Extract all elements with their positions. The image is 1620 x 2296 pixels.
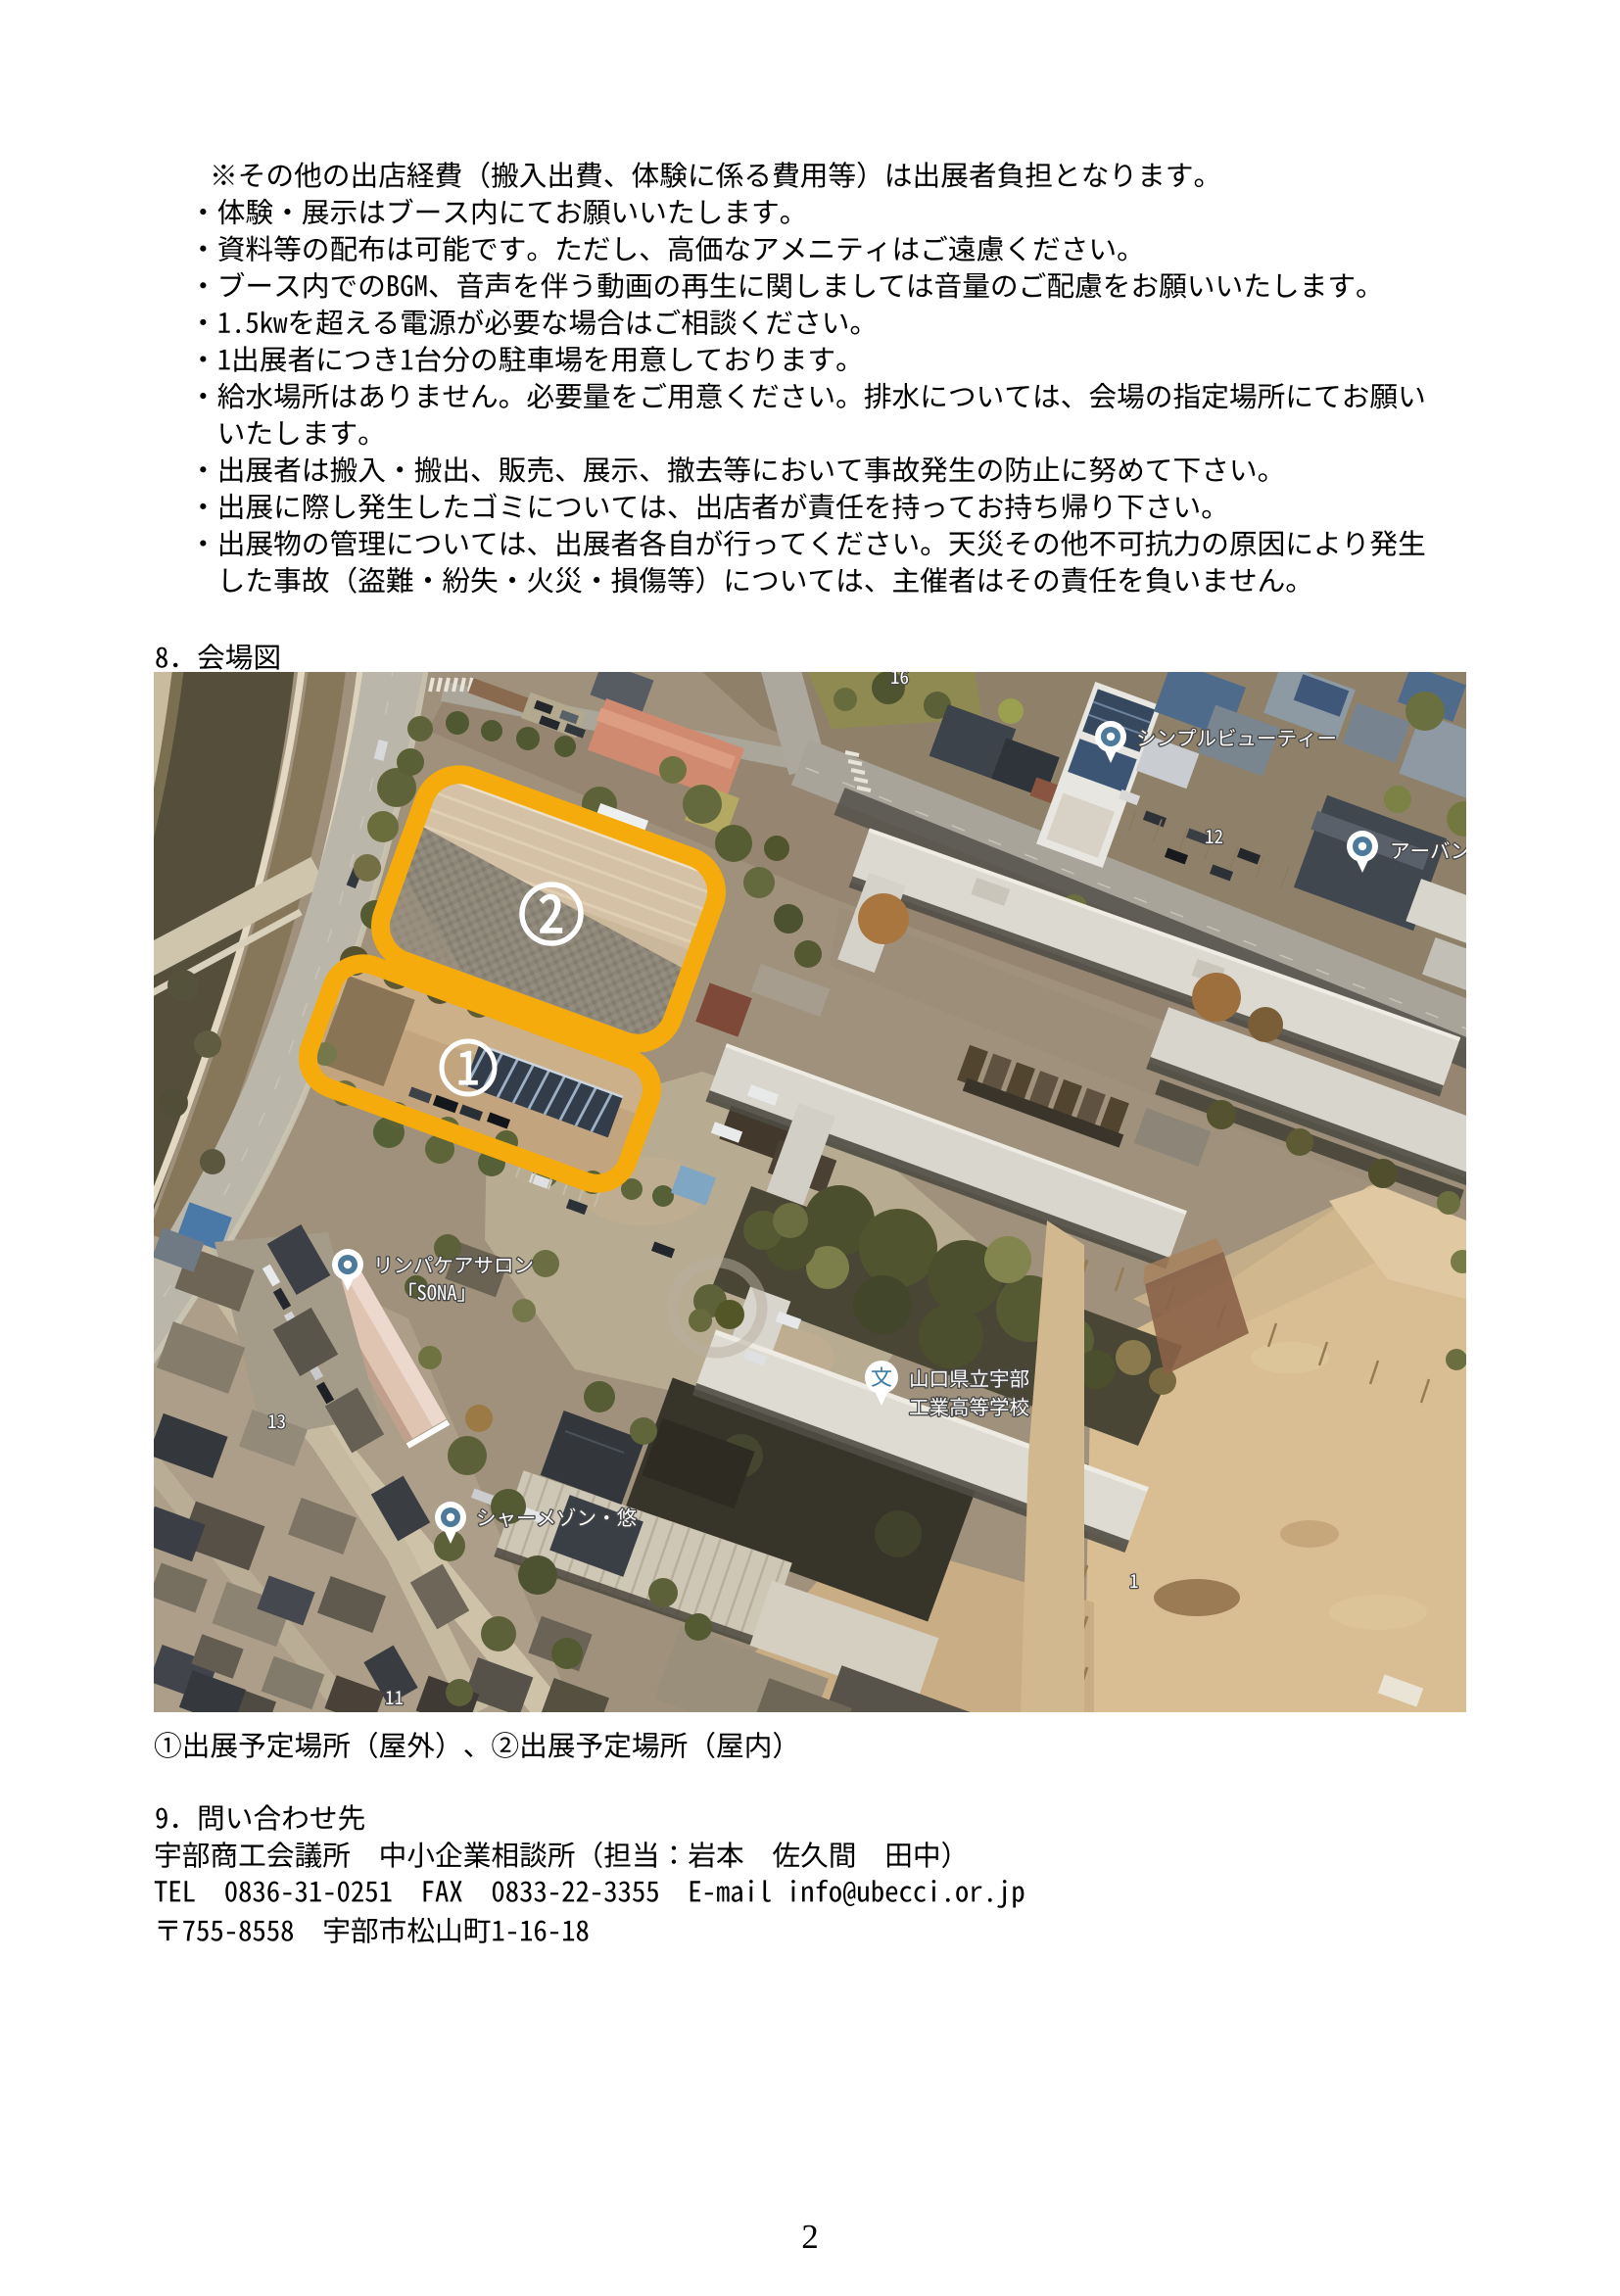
svg-text:2: 2: [801, 2218, 819, 2256]
